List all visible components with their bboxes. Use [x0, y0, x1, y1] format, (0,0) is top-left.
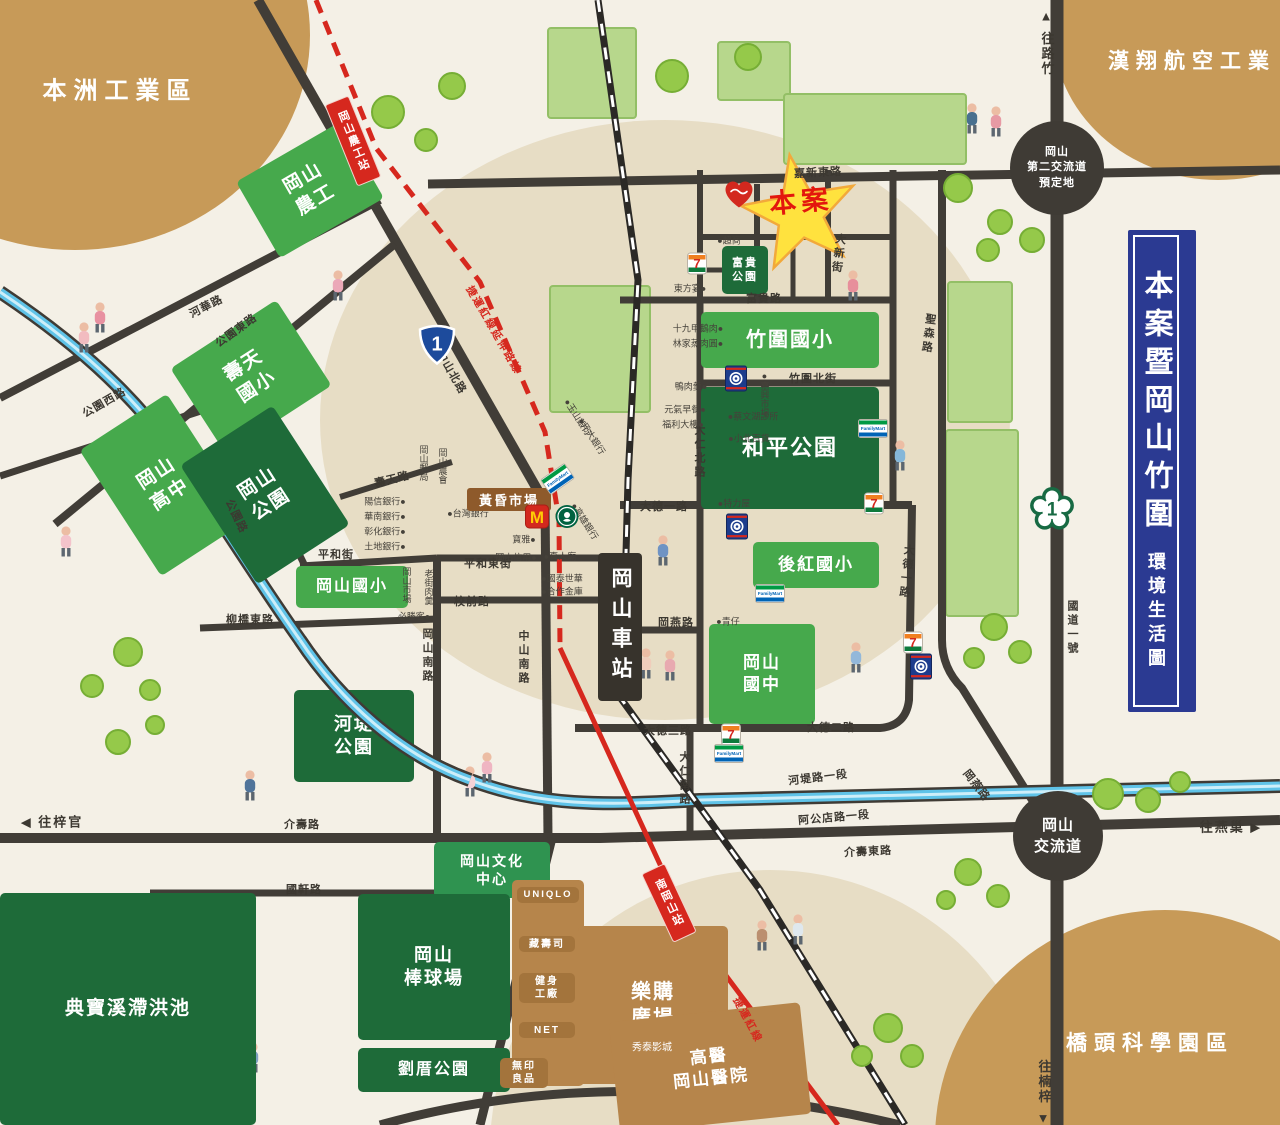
svg-text:FamilyMart: FamilyMart [758, 591, 783, 596]
svg-text:FamilyMart: FamilyMart [861, 426, 886, 431]
title-banner: 本案暨岡山竹圍 環境生活圖 [1128, 230, 1196, 712]
svg-text:FamilyMart: FamilyMart [717, 751, 742, 756]
svg-text:1: 1 [1047, 500, 1058, 521]
shield-provincial-highway-1: 1 [417, 323, 457, 372]
pxmart-icon [726, 514, 748, 545]
pxmart-icon [910, 654, 932, 685]
banner-subtitle: 環境生活圖 [1143, 552, 1169, 672]
pxmart-icon [725, 366, 747, 397]
seven-icon: 7 [864, 493, 884, 520]
environment-map: 岡山 農工壽天 國小岡山 高中岡山 公園岡山國小河堤 公園竹圍國小和平公園後紅國… [0, 0, 1280, 1125]
heart-icon [722, 179, 756, 216]
gangshan-interchange: 岡山 交流道 [1013, 791, 1103, 881]
svg-text:1: 1 [431, 334, 442, 356]
shield-national-highway-1: 1 [1029, 487, 1075, 538]
svg-text:7: 7 [909, 635, 916, 650]
gangshan-train-station: 岡山車站 [598, 553, 642, 701]
title-banner-inner: 本案暨岡山竹圍 環境生活圖 [1133, 235, 1179, 707]
familymart-icon: FamilyMart [714, 744, 744, 768]
seven-icon: 7 [687, 253, 707, 280]
svg-text:7: 7 [693, 256, 700, 271]
nonggong-mrt-station: 岡山農工站 [324, 95, 381, 186]
markers-layer: 岡山車站岡山農工站南岡山站岡山 第二交流道 預定地岡山 交流道黃昏市場M7777… [0, 0, 1280, 1125]
banner-title: 本案暨岡山竹圍 [1135, 270, 1177, 536]
svg-text:M: M [530, 508, 544, 527]
familymart-icon: FamilyMart [858, 419, 888, 443]
svg-text:7: 7 [870, 496, 877, 511]
svg-text:7: 7 [727, 727, 734, 742]
familymart-icon: FamilyMart [755, 584, 785, 608]
starbucks-icon [555, 505, 579, 534]
south-gangshan-mrt-station: 南岡山站 [641, 863, 697, 943]
site-star-label: 本案 [767, 177, 834, 221]
mcdonalds-icon: M [525, 505, 549, 534]
second-interchange-planned: 岡山 第二交流道 預定地 [1010, 121, 1104, 215]
